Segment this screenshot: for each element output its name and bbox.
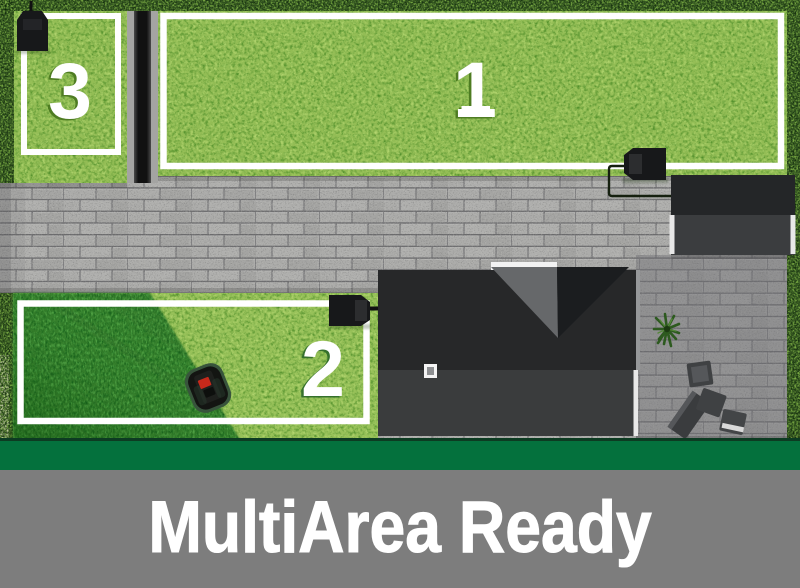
svg-text:2: 2 [301, 324, 345, 413]
svg-text:3: 3 [48, 46, 92, 135]
svg-text:1: 1 [453, 45, 497, 134]
